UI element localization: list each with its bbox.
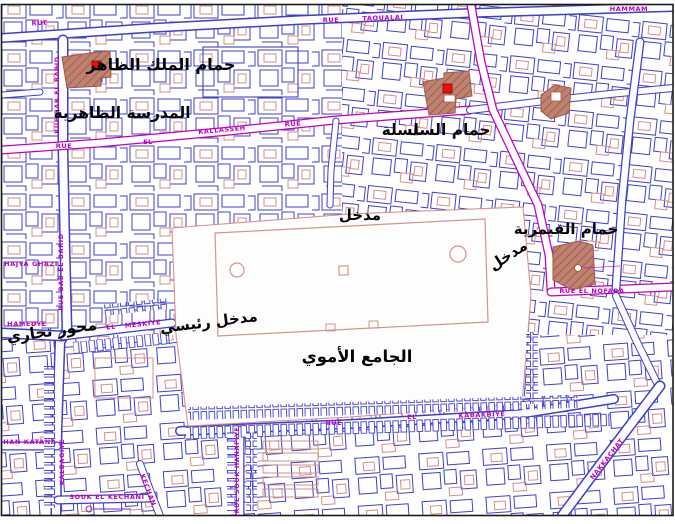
street-label: RUE	[326, 419, 343, 427]
street-label: RUE EL NOFARA	[559, 287, 624, 295]
hammam-qaymariya-building	[553, 241, 595, 290]
street-label: RUE SOUK HANAFIYE	[233, 427, 241, 514]
street-label: RUE	[284, 119, 301, 128]
street-label: KHAN KATANA	[0, 438, 56, 446]
street-label: RUE	[56, 142, 73, 150]
label-umayyad-mosque: الجامع الأموي	[302, 346, 413, 367]
label-hammam-silsila: حمام السلسلة	[382, 121, 491, 139]
street-label: KALBAGIYE	[58, 439, 66, 486]
street-label: RUE BAB EL BARID	[57, 233, 65, 310]
white-dome-qaymariya	[575, 265, 582, 272]
white-court-east	[551, 92, 561, 101]
street-label: RUE BAB EL BARID	[53, 56, 61, 133]
red-marker-silsila	[443, 84, 452, 93]
street-label: EL	[407, 413, 417, 421]
street-label: EL	[106, 323, 117, 332]
label-madrasa-zahiriya: المدرسة الظاهرية	[53, 104, 190, 122]
label-hammam-qaymariya: حمام القيمرية	[514, 220, 619, 238]
street-label: TAOUALAI	[362, 13, 403, 22]
label-entrance-north: مدخل	[339, 206, 381, 224]
street-label: KABAKBIYE	[458, 410, 505, 420]
white-court-silsila	[444, 95, 455, 102]
street-west-lane	[2, 92, 40, 95]
street-label: HAJYA GHAZI	[4, 260, 58, 268]
street-label: HAMMAM	[610, 5, 649, 13]
street-label: RUE	[323, 16, 340, 24]
label-hammam-zahir: حمام الملك الظاهر	[86, 55, 236, 74]
city-map-canvas: RUE RUE TAOUALAI HAMMAM RUE BAB EL BARID…	[0, 0, 675, 524]
street-label: SOUK EL KECHANI	[69, 493, 144, 501]
map-figure: RUE RUE TAOUALAI HAMMAM RUE BAB EL BARID…	[0, 0, 675, 524]
street-label: EL	[143, 138, 153, 146]
street-label: RUE	[31, 18, 48, 27]
